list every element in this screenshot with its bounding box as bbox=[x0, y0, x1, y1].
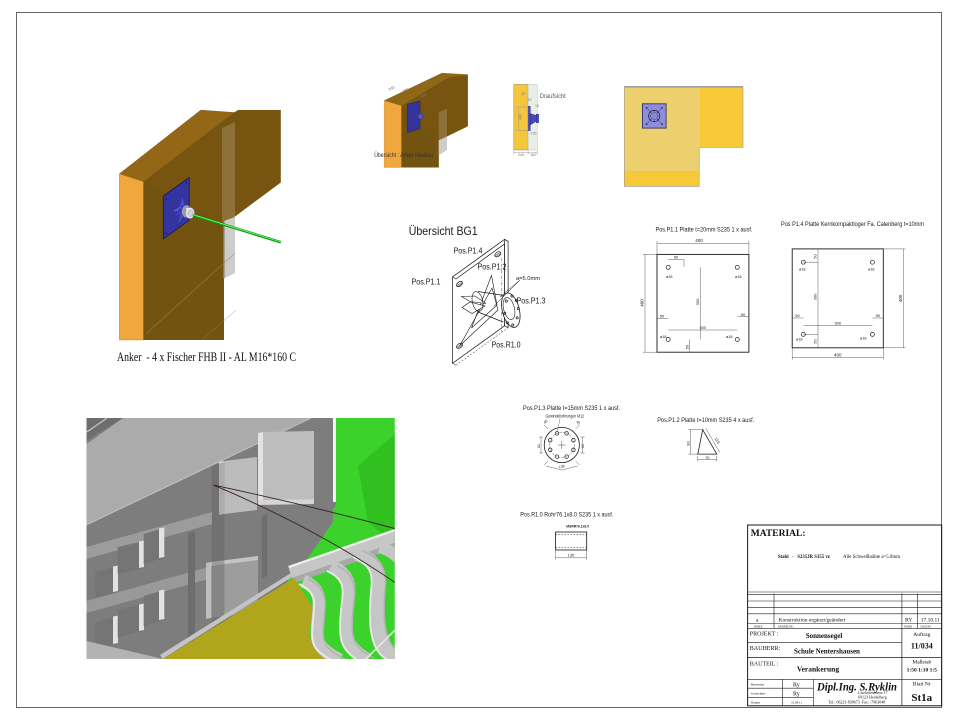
svg-text:17.10.11: 17.10.11 bbox=[921, 618, 940, 624]
svg-text:Tel.: 06221-830673 Fax: -7963: Tel.: 06221-830673 Fax: -7963048 bbox=[828, 700, 885, 705]
svg-text:61: 61 bbox=[537, 444, 541, 448]
svg-text:Gewindebohrungen M12: Gewindebohrungen M12 bbox=[546, 413, 585, 418]
svg-text:Pos P1.4 Platte Kernkompaktlog: Pos P1.4 Platte Kernkompaktloger Fa. Cal… bbox=[781, 222, 924, 228]
svg-text:Übersicht : Anker Neubau: Übersicht : Anker Neubau bbox=[374, 152, 433, 159]
svg-text:50: 50 bbox=[660, 314, 665, 319]
svg-text:DATUM: DATUM bbox=[921, 625, 931, 628]
svg-text:31.08.11: 31.08.11 bbox=[791, 701, 802, 705]
svg-text:400: 400 bbox=[695, 238, 703, 243]
svg-text:300: 300 bbox=[699, 325, 706, 330]
svg-text:Stahl - S235JR S355 vz: Stahl - S235JR S355 vz bbox=[778, 554, 830, 560]
svg-text:300: 300 bbox=[813, 293, 818, 300]
svg-text:Blatt Nr: Blatt Nr bbox=[913, 682, 931, 688]
svg-text:400: 400 bbox=[898, 294, 903, 302]
svg-text:300: 300 bbox=[695, 298, 700, 305]
svg-text:Sonnensegel: Sonnensegel bbox=[806, 632, 843, 640]
svg-text:Alle Schweißnähte a=5.0mm: Alle Schweißnähte a=5.0mm bbox=[843, 553, 901, 560]
svg-text:Pos.P1.3 Platte t=15mm S235 1: Pos.P1.3 Platte t=15mm S235 1 x ausf. bbox=[523, 405, 620, 412]
svg-text:Bearbeiter: Bearbeiter bbox=[751, 683, 765, 687]
svg-text:50: 50 bbox=[674, 255, 679, 260]
svg-text:Gezeichnet: Gezeichnet bbox=[751, 692, 765, 696]
svg-text:135: 135 bbox=[568, 553, 575, 558]
svg-text:50: 50 bbox=[741, 312, 746, 317]
svg-text:61: 61 bbox=[581, 444, 585, 448]
svg-text:50: 50 bbox=[813, 254, 818, 259]
svg-text:400: 400 bbox=[834, 353, 842, 358]
svg-text:1:50 1:10 1:5: 1:50 1:10 1:5 bbox=[907, 668, 937, 674]
svg-text:Pos.R1.0: Pos.R1.0 bbox=[492, 340, 521, 350]
svg-text:ø18: ø18 bbox=[735, 275, 742, 279]
svg-text:50: 50 bbox=[684, 344, 689, 349]
svg-text:a=5.0mm: a=5.0mm bbox=[516, 276, 540, 282]
svg-text:Auftrag: Auftrag bbox=[913, 631, 930, 638]
svg-text:Datum: Datum bbox=[751, 701, 760, 705]
svg-text:BAUHERR:: BAUHERR: bbox=[750, 646, 781, 652]
svg-text:ø18: ø18 bbox=[868, 268, 875, 272]
svg-text:Pos.P1.4: Pos.P1.4 bbox=[454, 246, 483, 256]
svg-text:135: 135 bbox=[531, 132, 537, 136]
svg-text:PROJEKT :: PROJEKT : bbox=[750, 632, 779, 638]
svg-text:15: 15 bbox=[535, 104, 539, 108]
svg-text:St1a: St1a bbox=[911, 692, 932, 704]
svg-text:Konstruktion ergänzt/geändert: Konstruktion ergänzt/geändert bbox=[779, 618, 846, 624]
svg-text:Draufsicht: Draufsicht bbox=[540, 93, 566, 100]
svg-text:90: 90 bbox=[685, 441, 690, 446]
svg-text:Schule Nentershausen: Schule Nentershausen bbox=[794, 648, 860, 656]
svg-text:RY: RY bbox=[905, 618, 912, 624]
svg-text:400: 400 bbox=[640, 299, 645, 307]
svg-text:Ry: Ry bbox=[793, 683, 800, 689]
svg-text:Maßstab: Maßstab bbox=[912, 659, 931, 666]
svg-text:ø18: ø18 bbox=[660, 335, 667, 339]
svg-text:ø18: ø18 bbox=[799, 268, 806, 272]
svg-text:50: 50 bbox=[876, 313, 881, 318]
svg-text:ø18: ø18 bbox=[726, 335, 733, 339]
svg-text:240: 240 bbox=[518, 153, 524, 157]
svg-text:Pos.P1.3: Pos.P1.3 bbox=[517, 296, 546, 306]
svg-text:Verankerung: Verankerung bbox=[797, 665, 839, 674]
svg-text:Übersicht BG1: Übersicht BG1 bbox=[409, 224, 478, 238]
svg-text:50: 50 bbox=[795, 313, 800, 318]
svg-text:20: 20 bbox=[528, 98, 532, 102]
svg-text:ø18: ø18 bbox=[666, 275, 673, 279]
svg-text:Pos.R1.0 Rohr76.1x8.0 S235 1 x: Pos.R1.0 Rohr76.1x8.0 S235 1 x ausf. bbox=[520, 511, 613, 518]
svg-text:50: 50 bbox=[813, 339, 818, 344]
svg-text:Ry: Ry bbox=[793, 692, 800, 698]
svg-text:NAME: NAME bbox=[904, 625, 913, 628]
svg-text:Pos.P1.2: Pos.P1.2 bbox=[478, 262, 507, 272]
svg-text:180: 180 bbox=[530, 153, 536, 157]
svg-text:MATERIAL:: MATERIAL: bbox=[751, 529, 806, 539]
svg-text:INDEX: INDEX bbox=[754, 625, 763, 628]
svg-text:MSRR76.1x8.0: MSRR76.1x8.0 bbox=[566, 523, 589, 528]
svg-text:70: 70 bbox=[705, 455, 710, 460]
svg-text:Anker - 4 x Fischer FHB II -: Anker - 4 x Fischer FHB II - AL M16*160 … bbox=[117, 350, 296, 364]
svg-text:300: 300 bbox=[834, 321, 841, 326]
svg-text:400: 400 bbox=[519, 114, 523, 120]
svg-text:40: 40 bbox=[522, 92, 526, 96]
svg-text:Pos.P1.1: Pos.P1.1 bbox=[412, 277, 441, 287]
svg-text:ÄNDERUNG: ÄNDERUNG bbox=[778, 625, 794, 628]
svg-text:Pos.P1.1 Platte t=20mm S235 1: Pos.P1.1 Platte t=20mm S235 1 x ausf. bbox=[656, 226, 753, 233]
svg-text:11/034: 11/034 bbox=[911, 642, 933, 651]
svg-text:BAUTEIL :: BAUTEIL : bbox=[750, 662, 779, 668]
svg-text:ø18: ø18 bbox=[796, 338, 803, 342]
svg-text:ø18: ø18 bbox=[860, 337, 867, 341]
svg-text:Pos.P1.2 Platte t=10mm S235 4: Pos.P1.2 Platte t=10mm S235 4 x ausf. bbox=[657, 417, 754, 424]
